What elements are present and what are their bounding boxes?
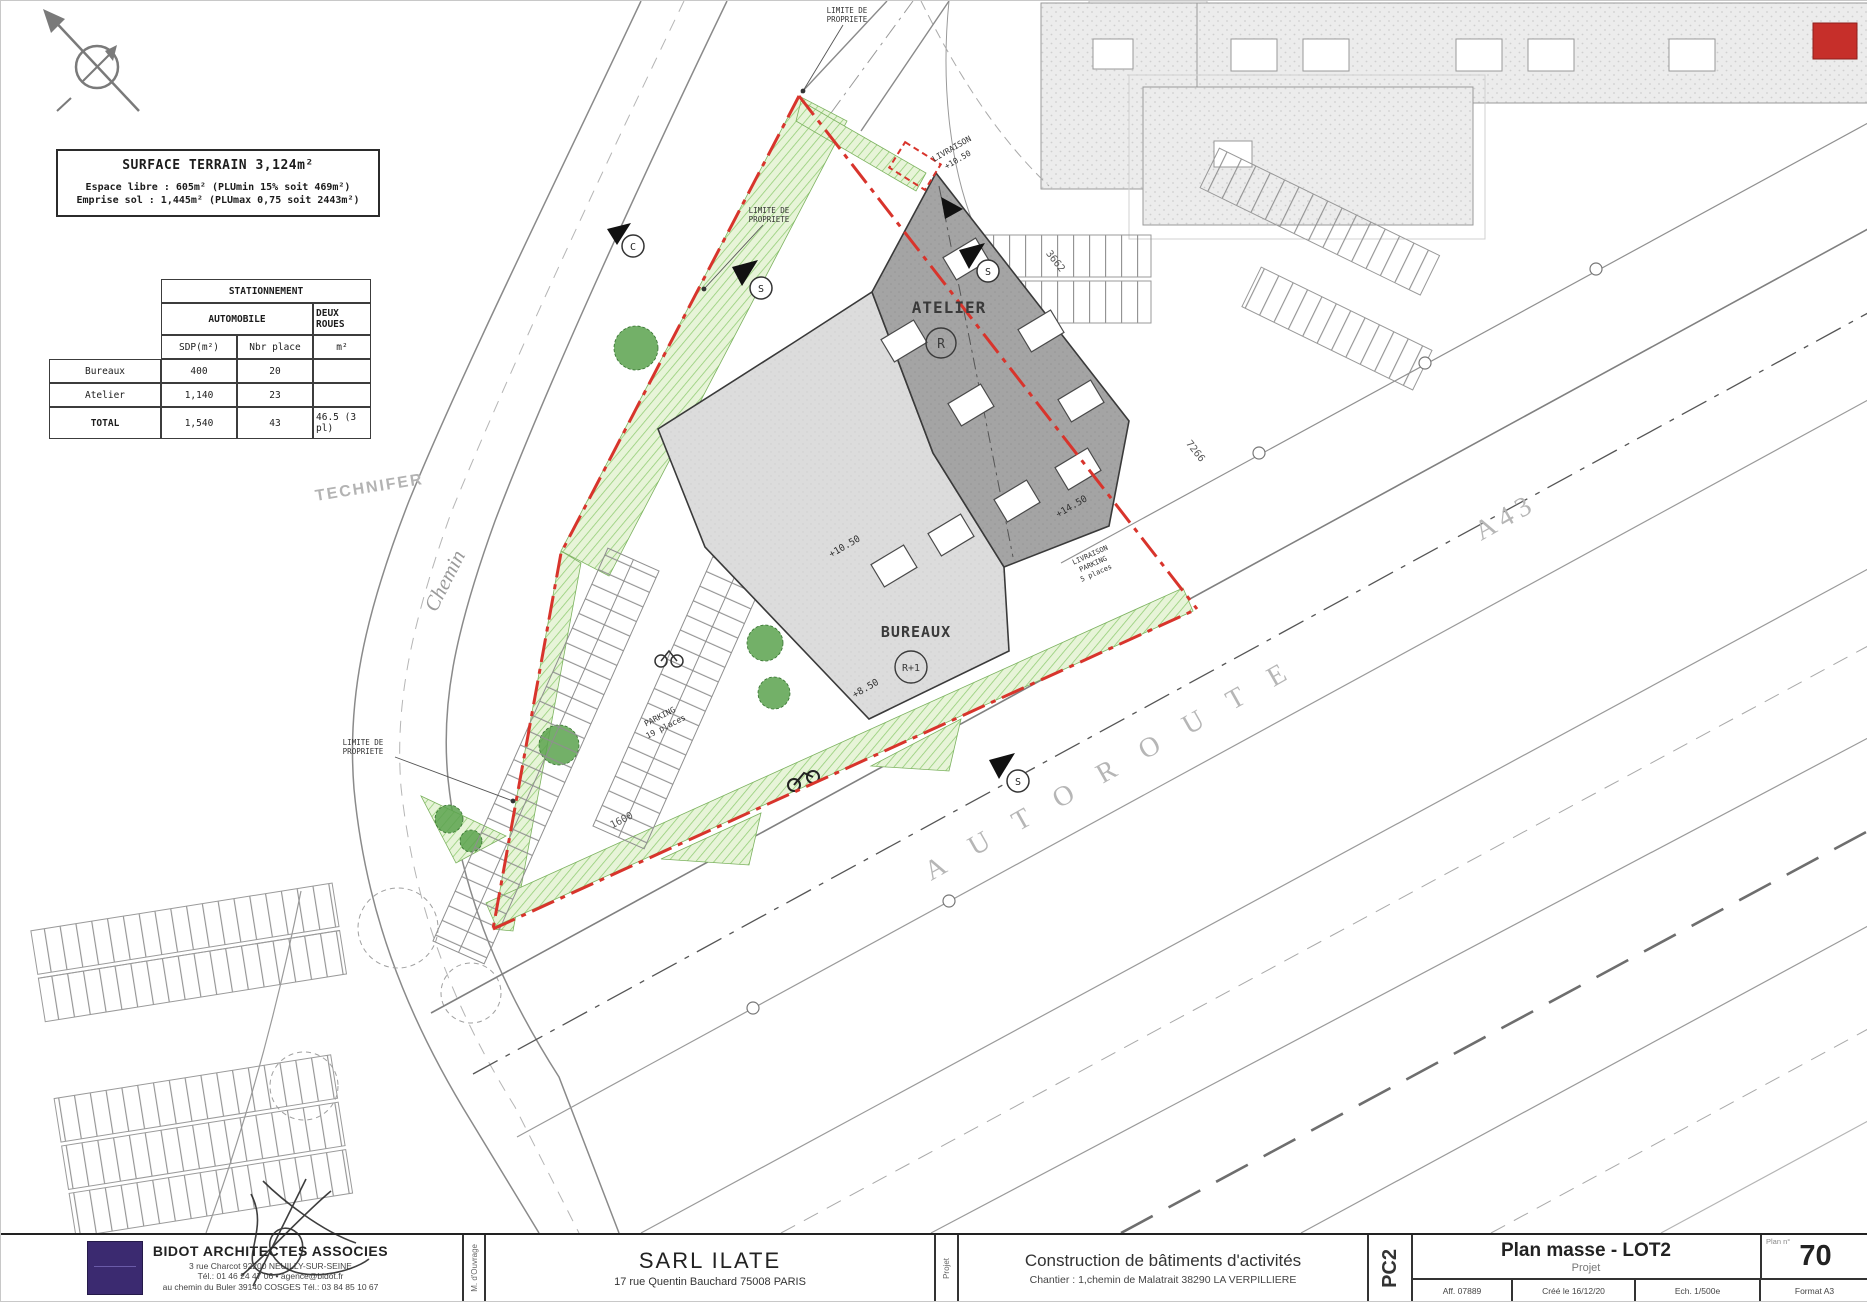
limite-label: LIMITE DE (749, 206, 790, 215)
owner-role-label-cell: M. d'Ouvrage (464, 1235, 486, 1301)
phase-label: PC2 (1379, 1249, 1402, 1288)
cell-sdp: 1,140 (161, 383, 237, 407)
client-section: SARL ILATE 17 rue Quentin Bauchard 75008… (486, 1235, 936, 1301)
row-label: Bureaux (49, 359, 161, 383)
existing-parking-west (31, 883, 501, 1237)
client-name: SARL ILATE (639, 1248, 781, 1274)
existing-buildings (1041, 1, 1867, 239)
a43-label: A43 (1469, 487, 1542, 547)
project-role-label: Projet (942, 1258, 951, 1279)
atelier-level: R (937, 337, 945, 352)
phase-cell: PC2 (1369, 1235, 1413, 1301)
architect-section: BIDOT ARCHITECTES ASSOCIES 3 rue Charcot… (1, 1235, 464, 1301)
bureaux-level: R+1 (902, 663, 920, 674)
architect-contact2: au chemin du Buler 39140 COSGES Tél.: 03… (153, 1282, 388, 1293)
cell-sdp: 1,540 (161, 407, 237, 439)
project-title: Construction de bâtiments d'activités (1025, 1251, 1301, 1271)
technifer-label: TECHNIFER (314, 471, 425, 505)
marker-letter: C (630, 242, 636, 253)
architect-logo (87, 1241, 143, 1295)
atelier-label: ATELIER (912, 298, 986, 317)
footer-aff: Aff. 07889 (1413, 1280, 1513, 1301)
col-header-m2: m² (313, 335, 371, 359)
architect-contact: Tél.: 01 46 24 47 06 • agence@bidot.fr (153, 1271, 388, 1282)
surface-legend-box: SURFACE TERRAIN 3,124m² Espace libre : 6… (56, 149, 380, 217)
architect-address: 3 rue Charcot 92200 NEUILLY-SUR-SEINE (153, 1261, 388, 1272)
cell-places: 20 (237, 359, 313, 383)
project-site: Chantier : 1,chemin de Malatrait 38290 L… (1030, 1274, 1297, 1286)
bureaux-label: BUREAUX (881, 623, 951, 641)
title-block: BIDOT ARCHITECTES ASSOCIES 3 rue Charcot… (1, 1233, 1867, 1302)
marker-letter: S (1015, 777, 1021, 788)
cell-sdp: 400 (161, 359, 237, 383)
footer-created: Créé le 16/12/20 (1513, 1280, 1636, 1301)
marker-letter: S (758, 284, 764, 295)
sheet-section: Plan masse - LOT2 Projet Plan n° 70 Aff.… (1413, 1235, 1867, 1301)
col-header-places: Nbr place (237, 335, 313, 359)
col-group-automobile: AUTOMOBILE (161, 303, 313, 335)
cell-m2 (313, 383, 371, 407)
col-header-sdp: SDP(m²) (161, 335, 237, 359)
cell-m2 (313, 359, 371, 383)
sheet-subtitle: Projet (1572, 1262, 1601, 1274)
cell-places: 23 (237, 383, 313, 407)
sheet-title-cell: Plan masse - LOT2 Projet (1412, 1235, 1762, 1278)
marker-letter: S (985, 267, 991, 278)
limite-label: LIMITE DE (827, 6, 868, 15)
tree-outline (441, 963, 501, 1023)
plan-number: 70 (1799, 1240, 1831, 1273)
architect-name: BIDOT ARCHITECTES ASSOCIES (153, 1243, 388, 1261)
table-title: STATIONNEMENT (161, 279, 371, 303)
autoroute-label: AUTOROUTE (919, 643, 1318, 887)
limite-label: PROPRIETE (343, 747, 384, 756)
footer-format: Format A3 (1761, 1280, 1867, 1301)
client-address: 17 rue Quentin Bauchard 75008 PARIS (614, 1276, 806, 1288)
limite-label: LIMITE DE (343, 738, 384, 747)
red-corner-marker (1813, 23, 1857, 59)
limite-label: PROPRIETE (827, 15, 868, 24)
sheet-title: Plan masse - LOT2 (1501, 1240, 1671, 1262)
plan-sheet: S S S C ATELIER R BUREAUX R+1 TECHNIFER … (0, 0, 1867, 1302)
limite-label: PROPRIETE (749, 215, 790, 224)
dimension-label: 7266 (1183, 439, 1207, 465)
col-group-deux-roues: DEUX ROUES (313, 303, 371, 335)
surface-line1: Espace libre : 605m² (PLUmin 15% soit 46… (62, 182, 374, 193)
parking-table: STATIONNEMENT AUTOMOBILE DEUX ROUES SDP(… (49, 279, 371, 439)
plan-number-label: Plan n° (1766, 1237, 1790, 1246)
project-section: Construction de bâtiments d'activités Ch… (959, 1235, 1369, 1301)
cell-m2: 46.5 (3 pl) (313, 407, 371, 439)
footer-scale: Ech. 1/500e (1636, 1280, 1761, 1301)
surface-title: SURFACE TERRAIN 3,124m² (62, 158, 374, 173)
row-label: TOTAL (49, 407, 161, 439)
chemin-label: Chemin (419, 546, 470, 615)
tree-outline (358, 888, 438, 968)
owner-role-label: M. d'Ouvrage (470, 1244, 479, 1292)
cell-places: 43 (237, 407, 313, 439)
row-label: Atelier (49, 383, 161, 407)
plan-number-cell: Plan n° 70 (1762, 1235, 1867, 1278)
surface-line2: Emprise sol : 1,445m² (PLUmax 0,75 soit … (62, 195, 374, 206)
project-role-label-cell: Projet (936, 1235, 959, 1301)
north-arrow-icon (43, 9, 139, 111)
